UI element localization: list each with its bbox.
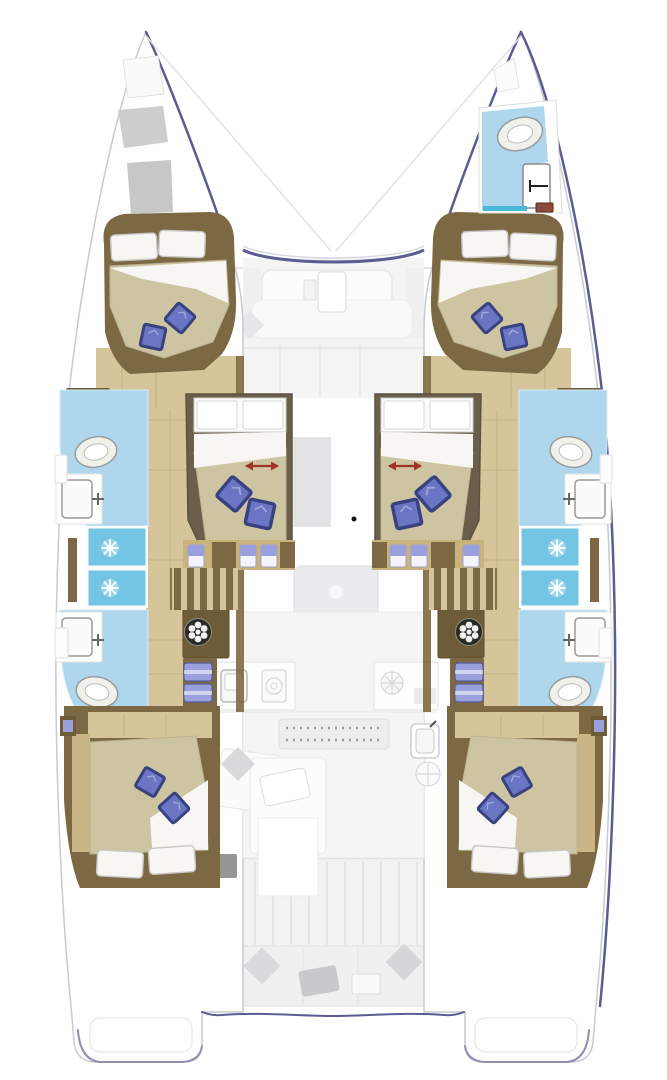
galley-counter-port xyxy=(217,662,295,710)
dining-table xyxy=(279,719,389,749)
bow-panel xyxy=(127,160,173,214)
bin xyxy=(219,854,237,878)
salon-galley xyxy=(214,612,440,896)
bathroom-door xyxy=(523,164,550,208)
bow-panel xyxy=(118,106,168,148)
bow-hatch xyxy=(123,56,164,98)
mast-base xyxy=(293,437,331,527)
deck-fitting-dot xyxy=(352,517,357,522)
floor-plan-canvas xyxy=(0,0,667,1080)
catamaran-floor-plan xyxy=(0,0,667,1080)
forward-cockpit xyxy=(236,258,424,398)
cockpit-table xyxy=(318,272,346,312)
shower-rail xyxy=(483,206,527,211)
storage-item xyxy=(536,203,553,212)
